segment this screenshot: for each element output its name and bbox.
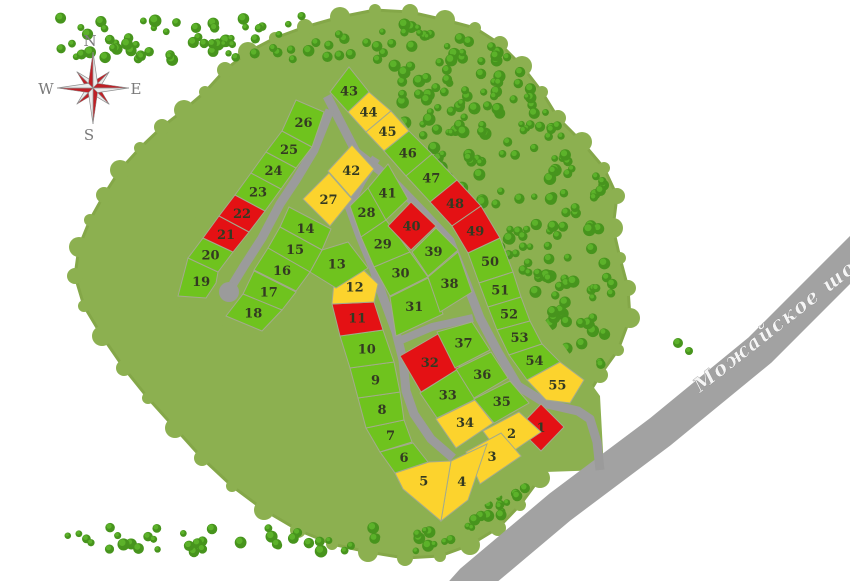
- tree-icon: [506, 226, 514, 234]
- tree-icon: [55, 13, 66, 24]
- tree-icon: [445, 54, 457, 66]
- tree-icon: [207, 524, 217, 534]
- tree-icon: [553, 231, 562, 240]
- forest-edge-bump: [142, 392, 154, 404]
- tree-icon: [558, 222, 568, 232]
- tree-icon: [583, 223, 596, 236]
- tree-icon: [477, 126, 487, 136]
- tree-icon: [367, 522, 379, 534]
- tree-icon: [87, 539, 94, 546]
- tree-icon: [334, 51, 344, 61]
- tree-icon: [596, 360, 605, 369]
- tree-icon: [315, 545, 328, 558]
- tree-icon: [487, 42, 496, 51]
- tree-icon: [531, 193, 537, 199]
- tree-icon: [442, 75, 452, 85]
- tree-icon: [77, 24, 84, 31]
- forest-edge-bump: [609, 188, 625, 204]
- tree-icon: [322, 52, 332, 62]
- tree-icon: [132, 41, 140, 49]
- tree-icon: [346, 49, 356, 59]
- tree-icon: [685, 347, 693, 355]
- tree-icon: [555, 282, 564, 291]
- tree-icon: [460, 114, 467, 121]
- tree-icon: [242, 24, 249, 31]
- tree-icon: [545, 193, 557, 205]
- forest-edge-bump: [78, 300, 90, 312]
- tree-icon: [77, 49, 87, 59]
- forest-edge-bump: [330, 7, 350, 27]
- tree-icon: [527, 243, 534, 250]
- tree-icon: [503, 232, 515, 244]
- tree-icon: [149, 15, 162, 28]
- forest-edge-bump: [620, 280, 636, 296]
- tree-icon: [166, 53, 173, 60]
- tree-icon: [172, 18, 181, 27]
- tree-icon: [530, 144, 538, 152]
- tree-icon: [576, 338, 587, 349]
- tree-icon: [567, 276, 579, 288]
- tree-icon: [564, 254, 572, 262]
- tree-icon: [514, 193, 524, 203]
- tree-icon: [592, 284, 600, 292]
- forest-edge-bump: [69, 237, 89, 257]
- tree-icon: [590, 193, 598, 201]
- tree-icon: [303, 45, 315, 57]
- tree-icon: [275, 31, 282, 38]
- tree-icon: [423, 113, 436, 126]
- forest-edge-bump: [110, 160, 130, 180]
- tree-icon: [341, 547, 349, 555]
- tree-icon: [144, 47, 154, 57]
- tree-icon: [287, 45, 295, 53]
- tree-icon: [503, 137, 512, 146]
- tree-icon: [469, 514, 480, 525]
- tree-icon: [571, 203, 580, 212]
- tree-icon: [520, 126, 528, 134]
- forest-edge-bump: [297, 19, 313, 35]
- tree-icon: [512, 491, 522, 501]
- forest-edge-bump: [254, 500, 274, 520]
- tree-icon: [477, 57, 485, 65]
- tree-icon: [140, 18, 147, 25]
- cul-de-sac: [219, 282, 239, 302]
- compass-south-label: S: [84, 126, 94, 144]
- tree-icon: [121, 38, 133, 50]
- tree-icon: [480, 89, 487, 96]
- tree-icon: [510, 95, 518, 103]
- plot-11[interactable]: 11: [332, 302, 383, 336]
- tree-icon: [117, 538, 129, 550]
- forest-edge-bump: [434, 550, 446, 562]
- tree-icon: [598, 258, 610, 270]
- tree-icon: [184, 541, 194, 551]
- plot-11-shape[interactable]: [332, 302, 383, 336]
- forest-edge-bump: [603, 218, 623, 238]
- tree-icon: [56, 44, 65, 53]
- tree-icon: [576, 318, 586, 328]
- tree-icon: [400, 28, 408, 36]
- tree-icon: [458, 99, 466, 107]
- tree-icon: [101, 25, 109, 33]
- tree-icon: [198, 544, 207, 553]
- tree-icon: [542, 109, 549, 116]
- tree-icon: [448, 129, 455, 136]
- tree-icon: [599, 328, 608, 337]
- tree-icon: [221, 41, 228, 48]
- tree-icon: [335, 30, 343, 38]
- tree-icon: [515, 67, 525, 77]
- tree-icon: [422, 527, 428, 533]
- tree-icon: [372, 41, 383, 52]
- tree-icon: [398, 90, 407, 99]
- tree-icon: [544, 273, 554, 283]
- tree-icon: [514, 79, 524, 89]
- forest-edge-bump: [620, 308, 640, 328]
- tree-icon: [560, 149, 571, 160]
- forest-edge-bump: [402, 4, 418, 20]
- forest-edge-bump: [116, 360, 132, 376]
- tree-icon: [272, 539, 282, 549]
- tree-icon: [442, 65, 452, 75]
- tree-icon: [199, 39, 208, 48]
- tree-icon: [559, 297, 571, 309]
- tree-icon: [416, 30, 423, 37]
- tree-icon: [65, 532, 72, 539]
- tree-icon: [504, 499, 511, 506]
- tree-icon: [431, 541, 438, 548]
- forest-edge-bump: [84, 214, 96, 226]
- tree-icon: [441, 538, 448, 545]
- tree-icon: [231, 53, 240, 62]
- tree-icon: [547, 221, 558, 232]
- tree-icon: [413, 548, 420, 555]
- tree-icon: [589, 294, 596, 301]
- tree-icon: [468, 102, 480, 114]
- tree-icon: [289, 55, 297, 63]
- tree-icon: [531, 219, 542, 230]
- tree-icon: [435, 58, 443, 66]
- forest-edge-bump: [358, 542, 378, 562]
- tree-icon: [105, 35, 115, 45]
- tree-icon: [235, 537, 247, 549]
- tree-icon: [464, 153, 474, 163]
- forest-edge-bump: [369, 4, 381, 16]
- tree-icon: [105, 545, 114, 554]
- compass-west-label: W: [38, 80, 54, 98]
- forest-edge-bump: [96, 187, 112, 203]
- tree-icon: [444, 43, 451, 50]
- forest-edge-bump: [469, 22, 481, 34]
- forest-edge-bump: [435, 10, 455, 30]
- forest-edge-bump: [612, 344, 624, 356]
- tree-icon: [379, 28, 386, 35]
- tree-icon: [347, 542, 355, 550]
- forest-edge-bump: [614, 252, 626, 264]
- forest-edge-bump: [217, 62, 233, 78]
- tree-icon: [369, 533, 380, 544]
- tree-icon: [264, 524, 272, 532]
- tree-icon: [68, 40, 76, 48]
- tree-icon: [510, 150, 520, 160]
- tree-icon: [137, 52, 146, 61]
- tree-icon: [547, 306, 558, 317]
- tree-icon: [210, 23, 220, 33]
- compass-star-icon: [57, 52, 129, 124]
- tree-icon: [431, 83, 440, 92]
- tree-icon: [315, 537, 325, 547]
- tree-icon: [476, 69, 487, 80]
- tree-icon: [362, 38, 371, 47]
- site-plan-map: Можайское шоссе 123456789101112131415161…: [0, 0, 850, 581]
- forest-edge-bump: [397, 550, 413, 566]
- tree-icon: [494, 78, 503, 87]
- site-plan-page: Можайское шоссе 123456789101112131415161…: [0, 0, 850, 581]
- tree-icon: [495, 502, 503, 510]
- tree-icon: [99, 52, 110, 63]
- tree-icon: [311, 38, 320, 47]
- tree-icon: [544, 254, 555, 265]
- tree-icon: [529, 108, 540, 119]
- tree-icon: [225, 50, 231, 56]
- forest-edge-bump: [194, 450, 210, 466]
- tree-icon: [598, 177, 606, 185]
- tree-icon: [560, 189, 569, 198]
- tree-icon: [75, 530, 82, 537]
- tree-icon: [191, 23, 201, 33]
- tree-icon: [607, 279, 617, 289]
- tree-icon: [434, 104, 441, 111]
- tree-icon: [163, 28, 170, 35]
- tree-icon: [255, 24, 263, 32]
- tree-icon: [561, 316, 572, 327]
- tree-icon: [496, 509, 507, 520]
- tree-icon: [568, 165, 575, 172]
- compass-east-label: E: [131, 80, 142, 98]
- tree-icon: [463, 36, 474, 47]
- tree-icon: [524, 94, 531, 101]
- tree-icon: [440, 88, 449, 97]
- forest-edge-bump: [536, 86, 548, 98]
- forest-edge-bump: [165, 418, 185, 438]
- tree-icon: [533, 269, 542, 278]
- tree-icon: [152, 524, 161, 533]
- tree-icon: [483, 101, 492, 110]
- tree-icon: [373, 55, 382, 64]
- tree-icon: [424, 34, 431, 41]
- tree-icon: [491, 199, 500, 208]
- tree-icon: [114, 532, 121, 539]
- forest-edge-bump: [572, 132, 592, 152]
- forest-edge-bump: [460, 535, 480, 555]
- tree-icon: [607, 289, 616, 298]
- tree-icon: [673, 338, 683, 348]
- tree-icon: [503, 53, 511, 61]
- tree-icon: [561, 208, 571, 218]
- tree-icon: [285, 21, 292, 28]
- tree-icon: [557, 132, 564, 139]
- tree-icon: [304, 538, 314, 548]
- tree-icon: [387, 39, 396, 48]
- tree-icon: [109, 44, 117, 52]
- tree-icon: [586, 243, 597, 254]
- tree-icon: [544, 242, 552, 250]
- tree-icon: [535, 122, 545, 132]
- tree-icon: [250, 48, 260, 58]
- tree-icon: [490, 92, 498, 100]
- tree-icon: [439, 151, 446, 158]
- tree-icon: [461, 86, 469, 94]
- compass-north-label: N: [83, 32, 96, 50]
- forest-edge-bump: [67, 268, 83, 284]
- tree-icon: [413, 530, 421, 538]
- forest-edge-bump: [199, 86, 211, 98]
- forest-edge-bump: [154, 119, 170, 135]
- tree-icon: [547, 125, 556, 134]
- forest-edge-bump: [598, 162, 610, 174]
- forest-edge-bump: [592, 367, 608, 383]
- tree-icon: [238, 13, 250, 25]
- tree-icon: [269, 44, 277, 52]
- forest-edge-bump: [226, 480, 238, 492]
- tree-icon: [421, 73, 431, 83]
- tree-icon: [499, 150, 507, 158]
- tree-icon: [459, 49, 466, 56]
- tree-icon: [490, 51, 501, 62]
- tree-icon: [180, 530, 187, 537]
- tree-icon: [551, 155, 558, 162]
- tree-icon: [389, 60, 401, 72]
- tree-icon: [133, 543, 144, 554]
- tree-icon: [251, 34, 260, 43]
- tree-icon: [228, 35, 235, 42]
- tree-icon: [208, 39, 217, 48]
- tree-icon: [229, 41, 236, 48]
- forest-edge-bump: [174, 100, 194, 120]
- tree-icon: [551, 291, 559, 299]
- tree-icon: [421, 94, 432, 105]
- highway-label: Можайское шоссе: [688, 229, 850, 397]
- tree-icon: [324, 41, 333, 50]
- tree-icon: [406, 41, 417, 52]
- tree-icon: [419, 131, 428, 140]
- tree-icon: [524, 258, 533, 267]
- tree-icon: [529, 286, 541, 298]
- tree-icon: [105, 523, 115, 533]
- tree-icon: [519, 243, 527, 251]
- tree-icon: [525, 269, 533, 277]
- forest-edge-bump: [134, 142, 146, 154]
- tree-icon: [457, 126, 469, 138]
- tree-icon: [325, 537, 332, 544]
- tree-icon: [492, 103, 504, 115]
- tree-icon: [473, 169, 485, 181]
- tree-icon: [188, 37, 199, 48]
- forest-edge-bump: [92, 326, 112, 346]
- tree-icon: [497, 187, 504, 194]
- tree-icon: [548, 166, 558, 176]
- tree-icon: [595, 185, 606, 196]
- tree-icon: [297, 12, 305, 20]
- tree-icon: [432, 124, 442, 134]
- tree-icon: [288, 533, 299, 544]
- tree-icon: [518, 232, 527, 241]
- tree-icon: [150, 536, 157, 543]
- tree-icon: [476, 159, 483, 166]
- tree-icon: [154, 546, 160, 552]
